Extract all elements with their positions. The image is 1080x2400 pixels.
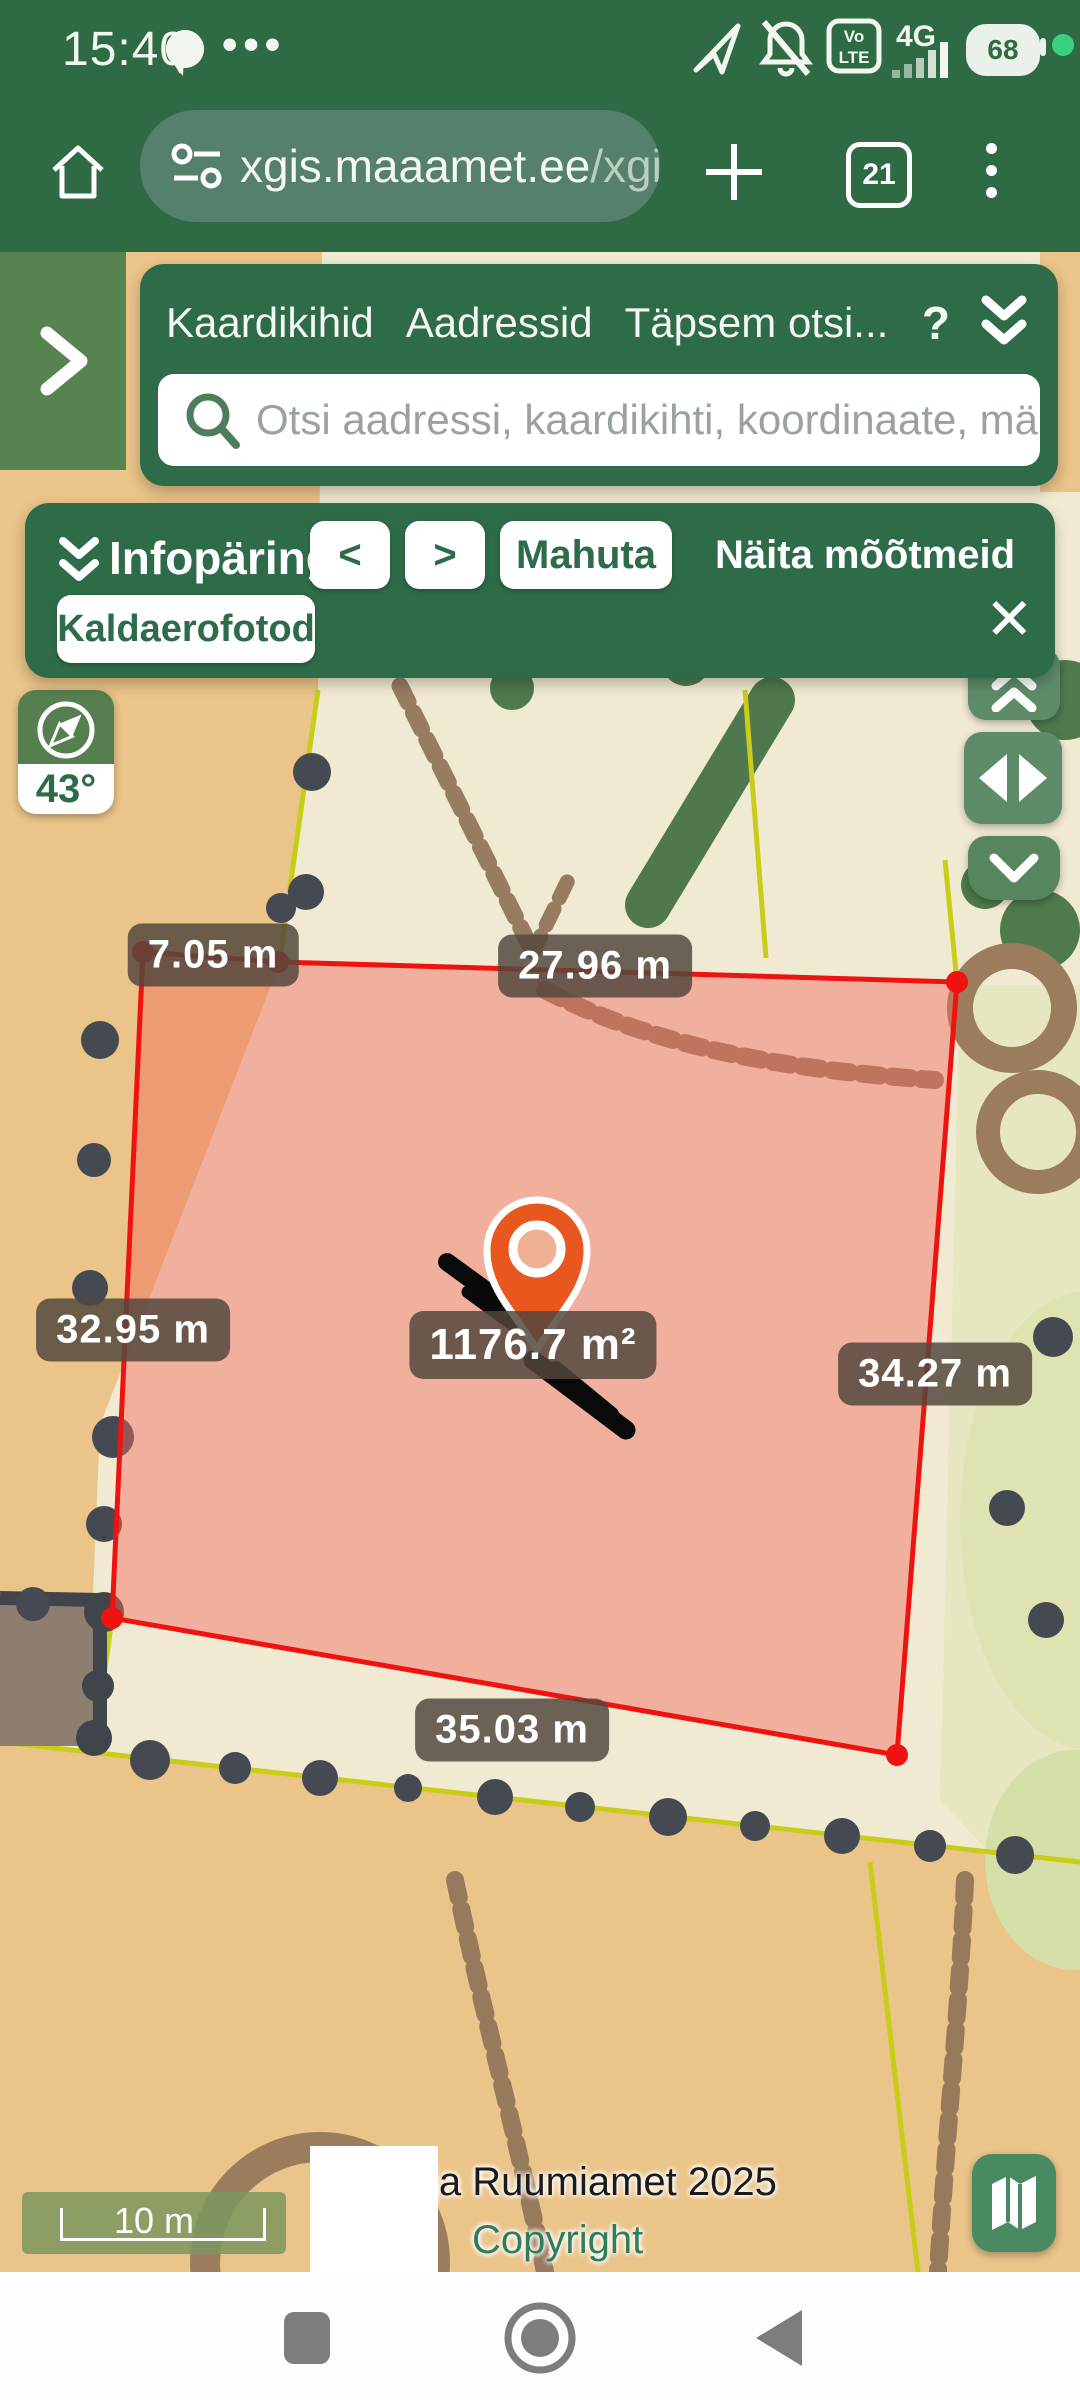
search-placeholder: Otsi aadressi, kaardikihti, koordinaate,…: [256, 396, 1040, 444]
privacy-indicator-dot: [1052, 34, 1074, 56]
next-result-button[interactable]: >: [405, 521, 485, 589]
browser-menu-icon[interactable]: [986, 132, 998, 209]
help-button[interactable]: ?: [922, 296, 950, 350]
tab-count: 21: [862, 158, 895, 192]
home-nav-button[interactable]: [500, 2298, 580, 2378]
back-button[interactable]: [756, 2310, 802, 2366]
measurement-label-top-left: 7.05 m: [128, 924, 299, 987]
show-measurements-toggle[interactable]: Näita mõõtmeid: [715, 533, 1015, 578]
tab-switcher-button[interactable]: 21: [846, 142, 912, 208]
measurement-label-left: 32.95 m: [36, 1299, 230, 1362]
left-right-arrows-icon: [975, 748, 1051, 808]
battery-nub: [1040, 38, 1046, 56]
close-info-panel-button[interactable]: ✕: [985, 591, 1034, 649]
location-active-icon: [688, 18, 746, 78]
layer-panel-tabs: Kaardikihid Aadressid Täpsem otsi... ?: [166, 292, 1032, 354]
fit-to-view-button[interactable]: Mahuta: [500, 521, 672, 589]
chevron-right-icon: [33, 321, 93, 401]
new-tab-icon[interactable]: [700, 138, 768, 206]
svg-text:Vo: Vo: [844, 27, 864, 46]
recents-button[interactable]: [284, 2312, 330, 2364]
android-navigation-bar: [0, 2272, 1080, 2400]
notification-overflow-dots: •••: [222, 20, 286, 70]
url-text: xgis.maaamet.ee/xgis:: [240, 139, 660, 193]
kaldaerofotod-button[interactable]: Kaldaerofotod: [57, 595, 315, 663]
search-input[interactable]: Otsi aadressi, kaardikihti, koordinaate,…: [158, 374, 1040, 466]
map-attribution: ja Ruumiamet 2025: [430, 2160, 777, 2205]
battery-percent: 68: [987, 34, 1018, 66]
browser-toolbar: xgis.maaamet.ee/xgis: 21: [0, 96, 1080, 252]
status-bar: 15:40 ••• Vo LTE 4G 68: [0, 0, 1080, 96]
scale-bar: 10 m: [22, 2192, 286, 2254]
chevron-down-icon: [986, 850, 1042, 886]
basemap-switch-button[interactable]: [972, 2154, 1056, 2252]
collapse-section-icon[interactable]: [55, 535, 103, 591]
swipe-compare-button[interactable]: [964, 732, 1062, 824]
compass-widget[interactable]: 43°: [18, 690, 114, 814]
compass-icon: [34, 698, 98, 762]
copyright-link[interactable]: Copyright: [472, 2218, 643, 2263]
folded-map-icon: [986, 2172, 1042, 2234]
redaction-box: [310, 2146, 438, 2272]
previous-result-button[interactable]: <: [310, 521, 390, 589]
collapse-panel-icon[interactable]: [976, 292, 1032, 354]
scroll-down-button[interactable]: [968, 836, 1060, 900]
rotation-degrees: 43°: [18, 764, 114, 814]
battery-indicator: 68: [966, 24, 1040, 76]
info-panel-title: Infopäring: [109, 531, 334, 585]
tab-kaardikihid[interactable]: Kaardikihid: [166, 299, 374, 347]
sidebar-expand-button[interactable]: [0, 252, 126, 470]
search-icon: [182, 389, 244, 451]
area-label: 1176.7 m²: [409, 1311, 656, 1379]
svg-text:LTE: LTE: [839, 48, 870, 67]
layer-panel: Kaardikihid Aadressid Täpsem otsi... ? O…: [140, 264, 1058, 486]
mute-bell-icon: [756, 16, 816, 80]
tab-tapsem-otsing[interactable]: Täpsem otsi...: [625, 299, 889, 347]
tab-aadressid[interactable]: Aadressid: [406, 299, 593, 347]
measurement-label-top: 27.96 m: [498, 935, 692, 998]
url-bar[interactable]: xgis.maaamet.ee/xgis:: [140, 110, 660, 222]
map-grass-areas: [940, 985, 1080, 1970]
home-icon[interactable]: [42, 136, 114, 208]
measurement-label-right: 34.27 m: [838, 1343, 1032, 1406]
volte-badge-icon: Vo LTE: [826, 18, 882, 74]
measurement-label-bottom: 35.03 m: [415, 1699, 609, 1762]
speech-bubble-icon: [160, 26, 210, 76]
signal-bars-icon: [890, 40, 960, 80]
info-query-panel: Infopäring < > Mahuta Näita mõõtmeid Kal…: [25, 503, 1055, 678]
site-settings-icon[interactable]: [168, 137, 226, 195]
scale-label: 10 m: [22, 2200, 286, 2242]
